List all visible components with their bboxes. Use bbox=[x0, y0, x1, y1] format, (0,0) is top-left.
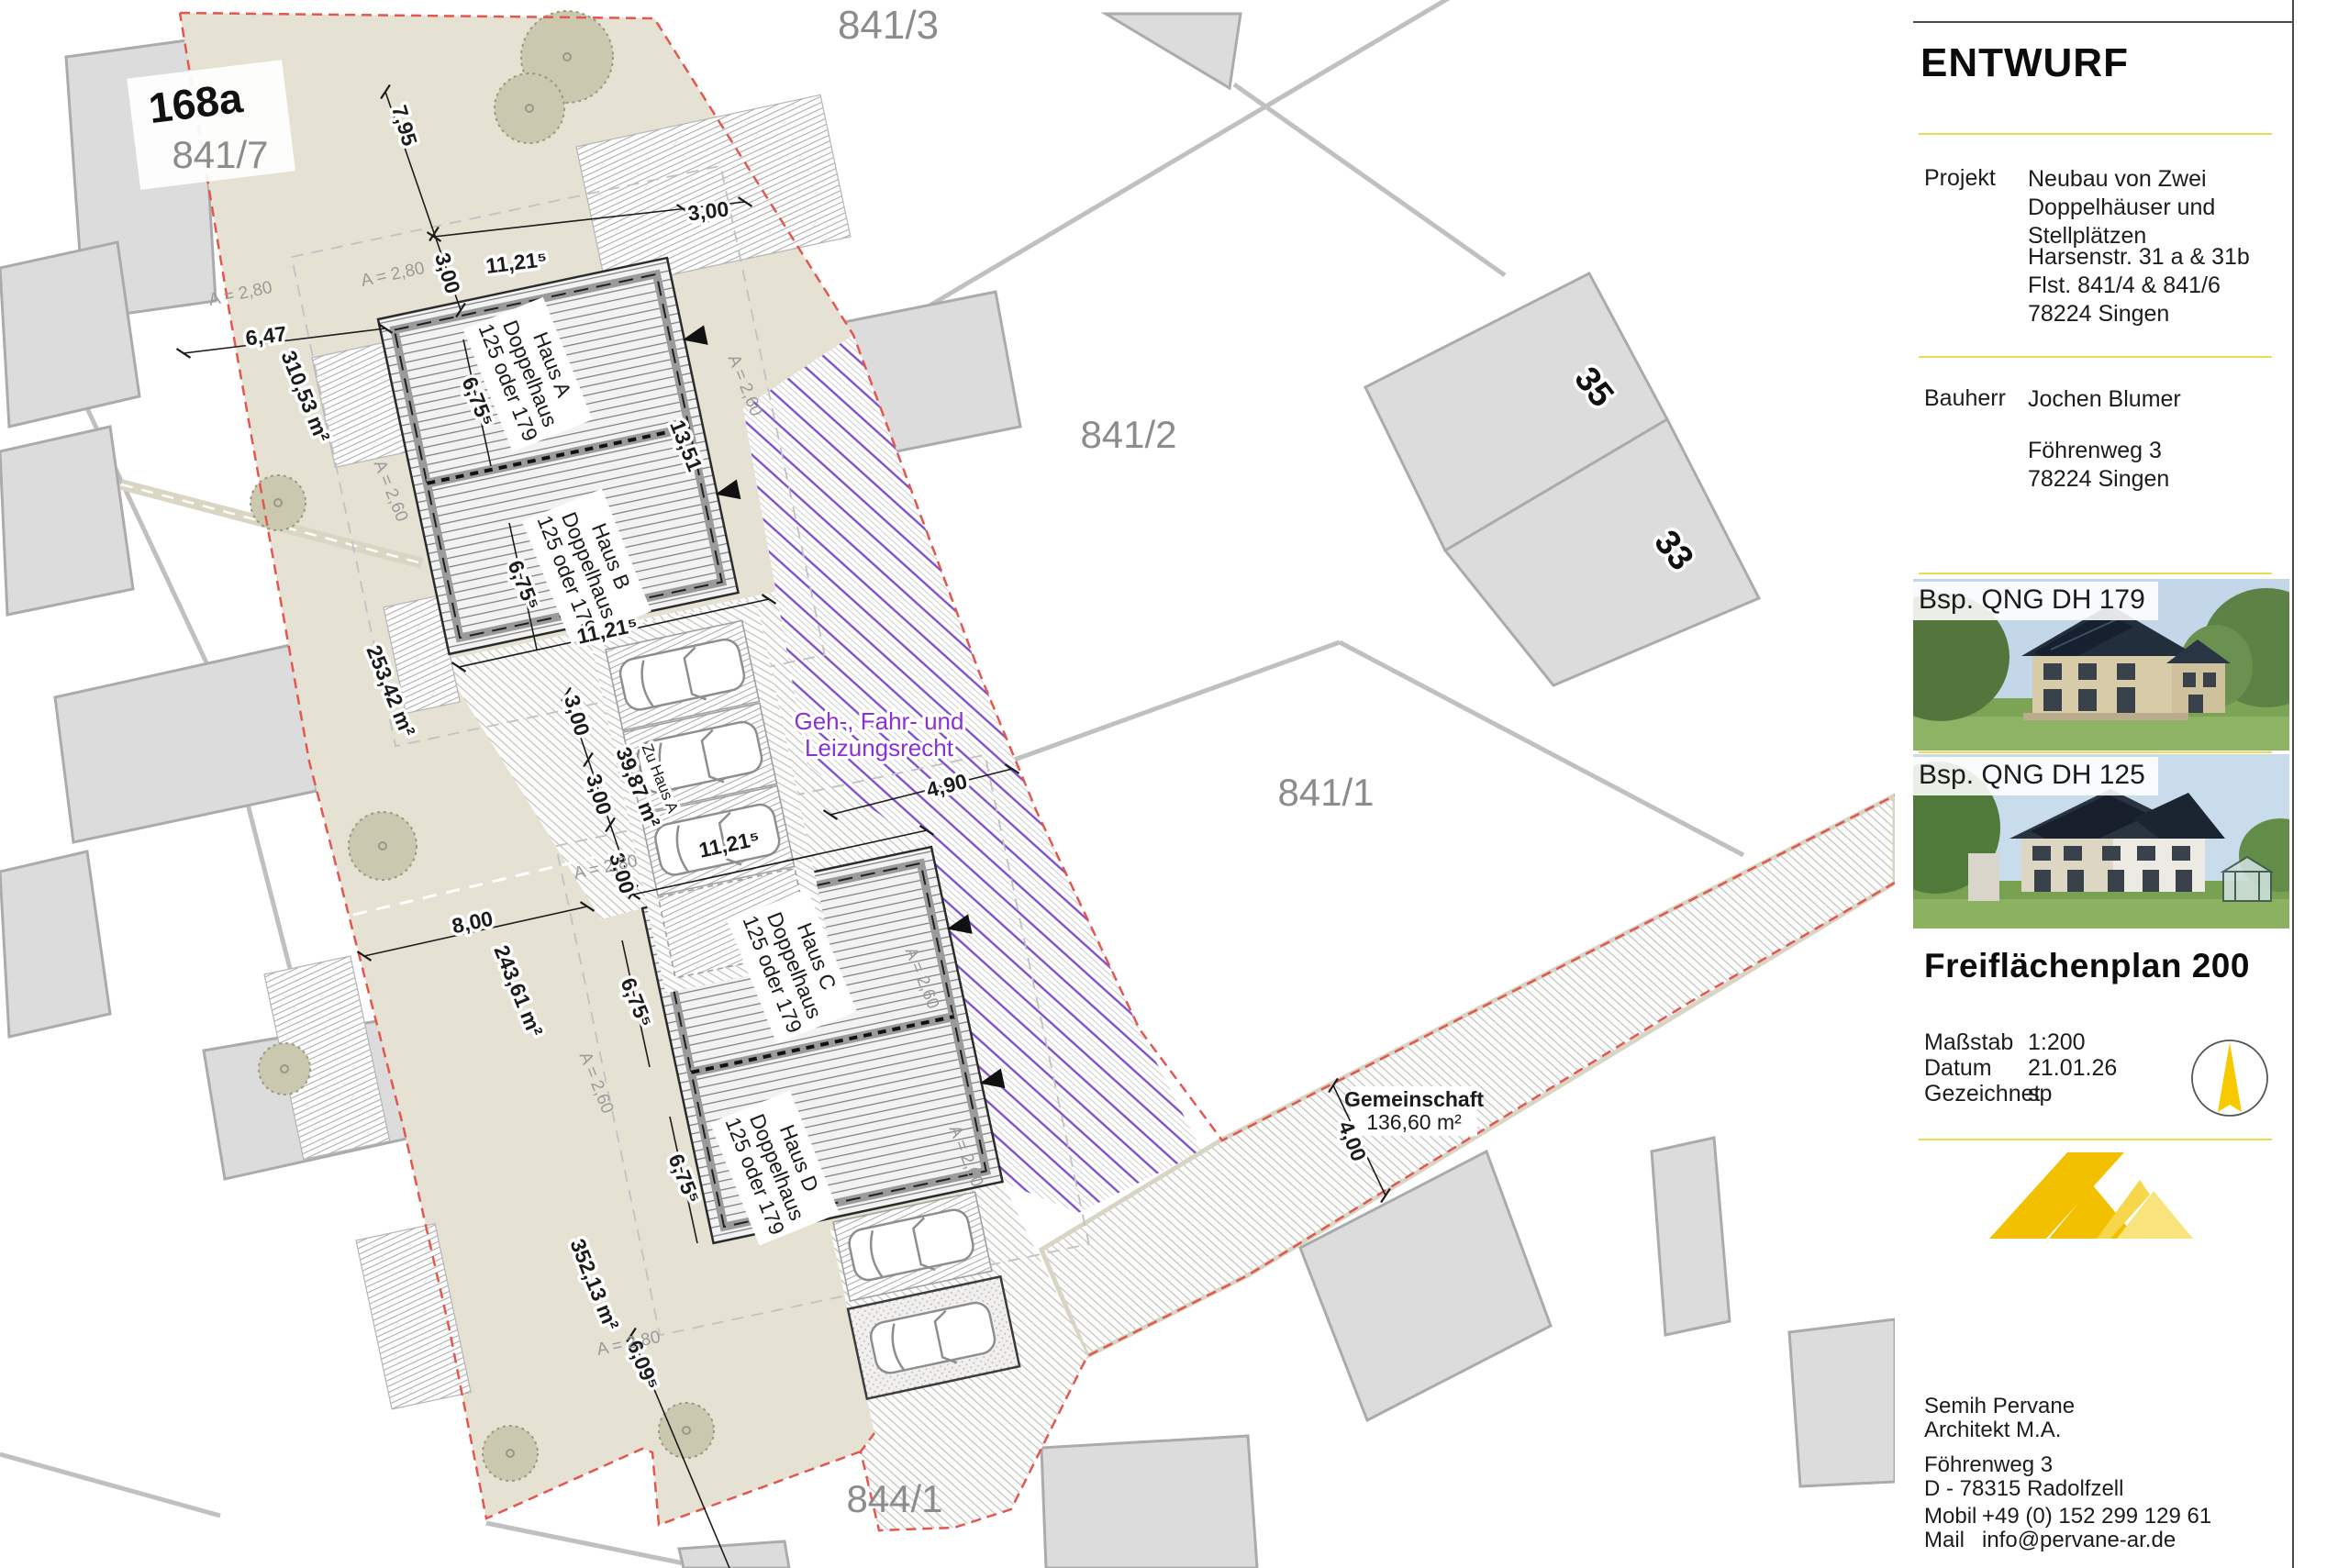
project-address: Harsenstr. 31 a & 31b Flst. 841/4 & 841/… bbox=[2028, 243, 2250, 328]
svg-text:6,47: 6,47 bbox=[244, 321, 288, 350]
community-label: Gemeinschaft 136,60 m² bbox=[1344, 1086, 1484, 1136]
date-value: 21.01.26 bbox=[2028, 1055, 2117, 1082]
drawn-label: Gezeichnet bbox=[1924, 1081, 2040, 1107]
svg-text:3,00: 3,00 bbox=[686, 196, 730, 225]
drawing-sheet: 168a 841/7 841/3 841/2 841/1 844/1 35 33… bbox=[0, 0, 2349, 1568]
divider bbox=[1919, 573, 2272, 574]
mobile-value: +49 (0) 152 299 129 61 bbox=[1982, 1505, 2211, 1529]
drawn-value: sp bbox=[2028, 1081, 2052, 1107]
site-plan: 168a 841/7 841/3 841/2 841/1 844/1 35 33… bbox=[0, 0, 1895, 1568]
sheet-status-title: ENTWURF bbox=[1920, 40, 2129, 86]
plan-title: Freiflächenplan 200 bbox=[1924, 947, 2250, 985]
svg-text:Geh-, Fahr- und: Geh-, Fahr- und bbox=[795, 707, 964, 735]
client-address: Föhrenweg 3 78224 Singen bbox=[2028, 437, 2169, 494]
parcel-label-844-1: 844/1 bbox=[846, 1477, 942, 1520]
mail-value: info@pervane-ar.de bbox=[1982, 1529, 2176, 1552]
mobile-label: Mobil bbox=[1924, 1505, 1976, 1529]
easement-label: Geh-, Fahr- und Leizungsrecht bbox=[795, 707, 964, 762]
divider bbox=[1919, 751, 2272, 753]
project-value: Neubau von Zwei Doppelhäuser und Stellpl… bbox=[2028, 165, 2215, 250]
architect-name: Semih Pervane Architekt M.A. bbox=[1924, 1395, 2075, 1442]
svg-text:Leizungsrecht: Leizungsrecht bbox=[805, 734, 954, 762]
parcel-label-841-2: 841/2 bbox=[1080, 413, 1176, 456]
date-label: Datum bbox=[1924, 1055, 1992, 1082]
scale-label: Maßstab bbox=[1924, 1029, 2013, 1056]
client-name: Jochen Blumer bbox=[2028, 385, 2181, 414]
svg-text:Gemeinschaft: Gemeinschaft bbox=[1344, 1087, 1484, 1111]
project-label: Projekt bbox=[1924, 165, 1996, 192]
architect-address: Föhrenweg 3 D - 78315 Radolfzell bbox=[1924, 1453, 2123, 1501]
mail-label: Mail bbox=[1924, 1529, 1965, 1552]
pervane-logo: Architektur pervane bbox=[1913, 1147, 2292, 1294]
title-block-panel: ENTWURF Projekt Neubau von Zwei Doppelhä… bbox=[1913, 0, 2294, 1568]
divider bbox=[1919, 356, 2272, 358]
scale-value: 1:200 bbox=[2028, 1029, 2086, 1056]
client-label: Bauherr bbox=[1924, 385, 2006, 412]
north-arrow-icon bbox=[2188, 1037, 2271, 1119]
photo-dh125: Bsp. QNG DH 125 bbox=[1913, 754, 2289, 929]
parcel-label-841-7: 841/7 bbox=[172, 133, 268, 176]
photo-label: Bsp. QNG DH 125 bbox=[1913, 757, 2158, 795]
photo-label: Bsp. QNG DH 179 bbox=[1913, 582, 2158, 620]
divider bbox=[1919, 133, 2272, 135]
divider bbox=[1919, 1139, 2272, 1140]
photo-dh179: Bsp. QNG DH 179 bbox=[1913, 579, 2289, 751]
svg-text:136,60 m²: 136,60 m² bbox=[1366, 1110, 1462, 1134]
parcel-label-841-3: 841/3 bbox=[838, 3, 939, 48]
parcel-label-841-1: 841/1 bbox=[1277, 771, 1374, 814]
panel-top-border bbox=[1913, 21, 2292, 23]
